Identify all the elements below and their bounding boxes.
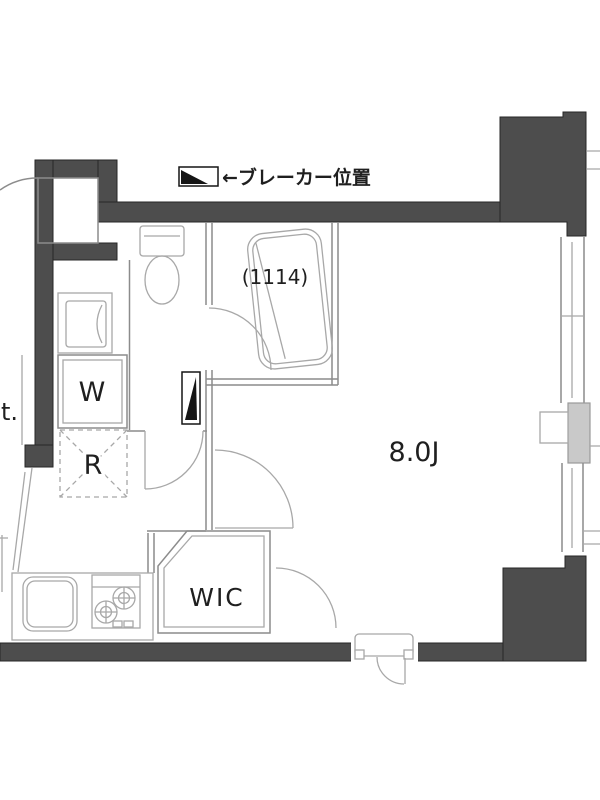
main-room-size-label: 8.0J [389,437,440,468]
bath-dimensions-label: (1114) [242,265,309,289]
wall-left-foot [25,445,53,467]
bathtub [246,228,334,371]
window-sill-box [540,412,568,443]
balcony-door [351,634,418,684]
sanitary-door-arc [145,431,203,489]
balcony-door-jamb-left [355,650,364,659]
toilet-bowl [145,256,179,304]
bathroom [140,226,334,370]
door-arcs [145,308,336,628]
kitchen-sink-inner [27,581,73,627]
wall-bath-bottom [206,379,338,385]
wall-bath-right [332,222,338,385]
balcony-door-jamb-right [404,650,413,659]
kitchen [12,573,153,640]
wall-bottom [0,643,503,661]
entrance-door-swing-arc [0,178,38,190]
closet-label: WIC [189,583,245,612]
left-edge-cutoff-label: t. [1,398,18,426]
window-upper-glass [561,242,584,398]
toilet-tank [140,226,184,256]
window-mullion-box [568,403,590,463]
labels: ←ブレーカー位置 (1114) W R 8.0J WIC t. [1,166,439,612]
floor-plan-drawing: ←ブレーカー位置 (1114) W R 8.0J WIC t. [0,0,600,800]
wall-top [98,202,503,222]
pillar-top-right [500,112,586,236]
wic-wall-outer [158,531,270,633]
refrigerator-label: R [84,450,103,481]
neighbor-lines-left [0,355,32,592]
pillar-bottom-right [503,556,586,661]
stove-detail-2 [124,621,133,627]
wic-door-arc [276,568,336,628]
wall-hall-bath [206,222,212,530]
floor-plan-canvas: ←ブレーカー位置 (1114) W R 8.0J WIC t. [0,0,600,800]
wall-kitchen-right [148,533,154,573]
breaker-legend-label: ←ブレーカー位置 [222,166,371,189]
kitchen-sink [23,577,77,631]
bathtub-fold-line [256,241,285,360]
wic-wall-inner [164,536,264,627]
main-room-door-arc [215,450,293,528]
right-windows [540,237,590,552]
stove-detail-1 [113,621,122,627]
washbasin-bowl-curve [97,305,102,343]
washer-label: W [79,377,106,408]
